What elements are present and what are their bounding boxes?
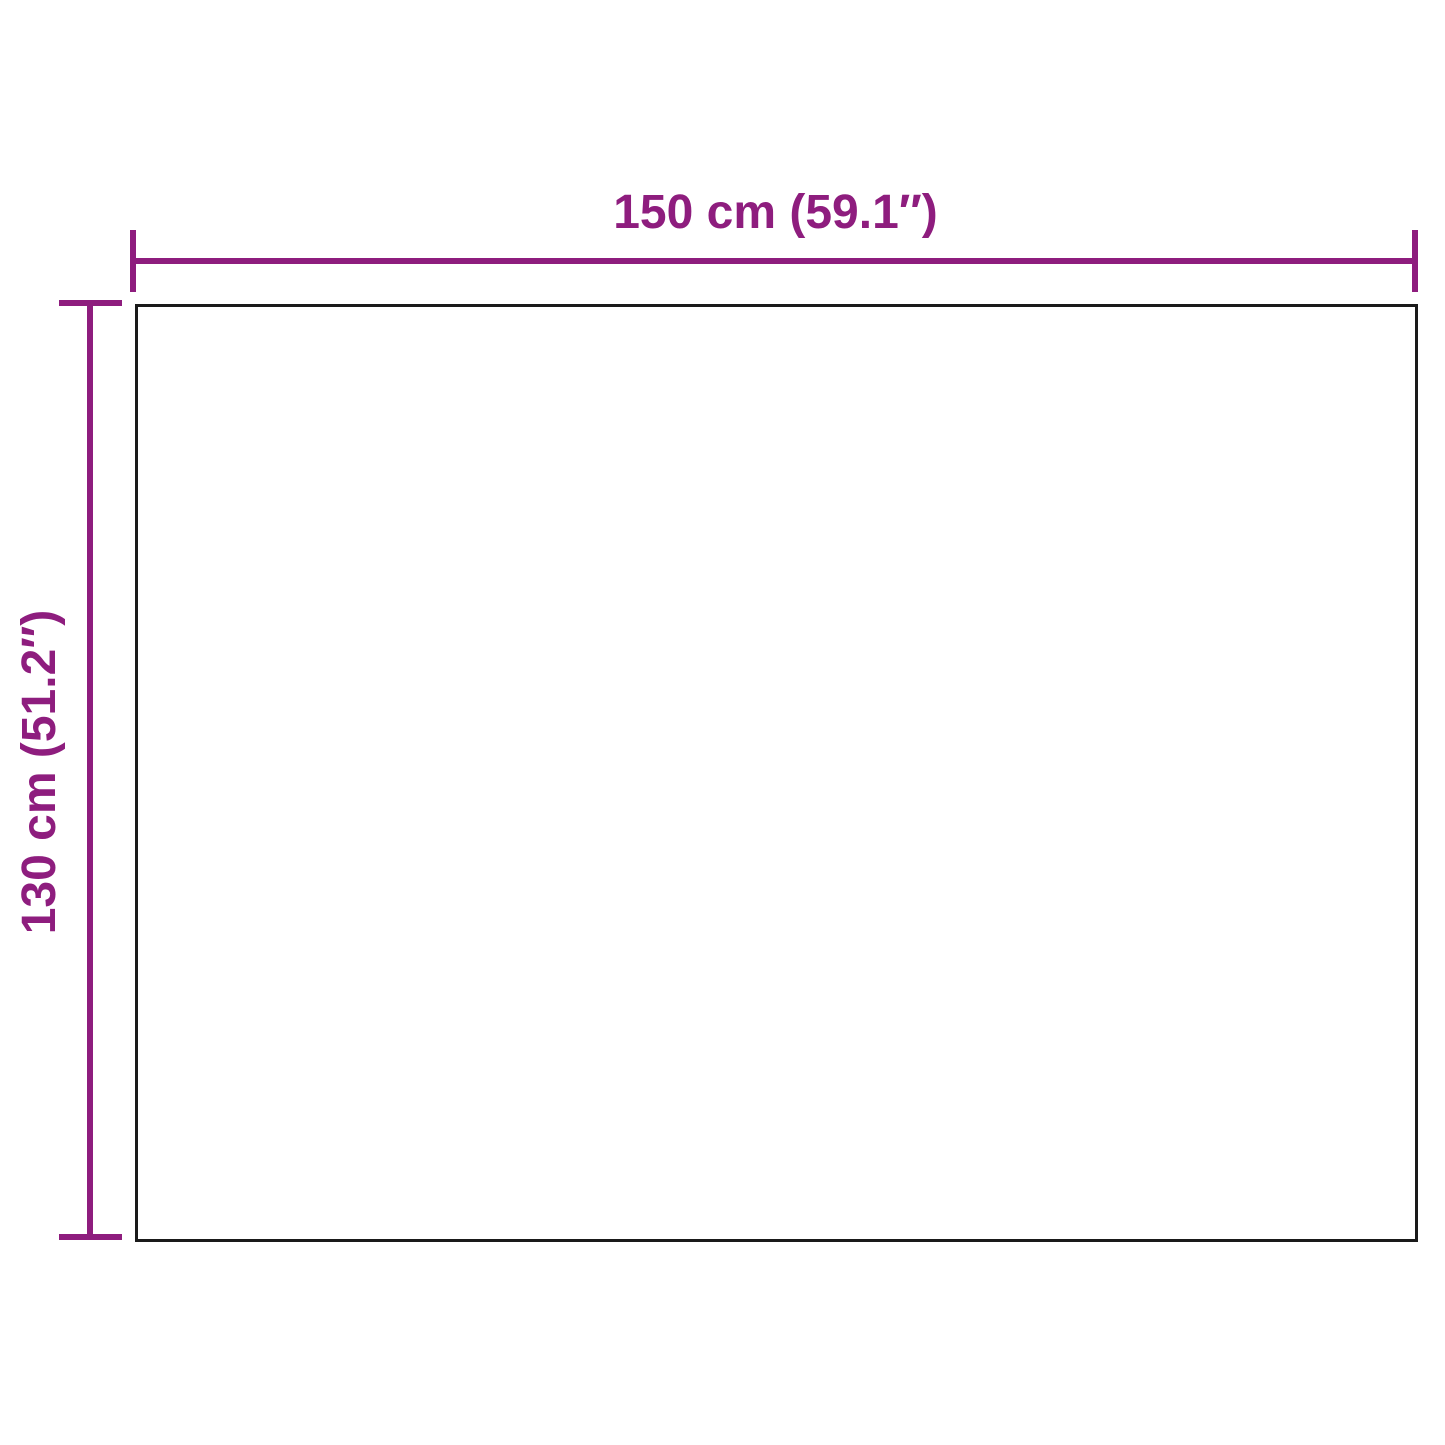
- width-dimension-label: 150 cm (59.1″): [133, 185, 1418, 241]
- width-dimension-line: [133, 258, 1418, 264]
- height-dimension-end-cap-top: [59, 300, 122, 306]
- height-dimension-line: [87, 303, 93, 1240]
- height-dimension-label: 130 cm (51.2″): [10, 472, 70, 1072]
- height-dimension-end-cap-bottom: [59, 1234, 122, 1240]
- dimension-diagram: 150 cm (59.1″) 130 cm (51.2″): [0, 0, 1445, 1445]
- product-outline-rectangle: [135, 304, 1418, 1242]
